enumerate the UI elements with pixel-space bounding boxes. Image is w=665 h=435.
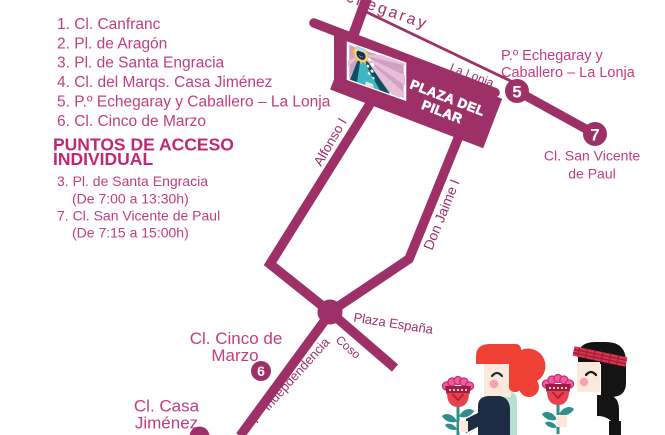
svg-text:Echegaray: Echegaray bbox=[332, 0, 431, 33]
svg-text:Jiménez: Jiménez bbox=[135, 414, 198, 433]
svg-text:6: 6 bbox=[257, 363, 265, 379]
svg-text:INDIVIDUAL: INDIVIDUAL bbox=[53, 149, 153, 169]
svg-text:(De 7:00 a 13:30h): (De 7:00 a 13:30h) bbox=[72, 191, 189, 207]
svg-text:2. Pl. de Aragón: 2. Pl. de Aragón bbox=[57, 35, 167, 52]
svg-text:7: 7 bbox=[590, 126, 599, 145]
svg-text:(De 7:15 a 15:00h): (De 7:15 a 15:00h) bbox=[72, 225, 189, 241]
svg-text:7. Cl. San Vicente de Paul: 7. Cl. San Vicente de Paul bbox=[57, 208, 220, 224]
svg-text:Caballero – La Lonja: Caballero – La Lonja bbox=[501, 65, 636, 81]
svg-text:5: 5 bbox=[512, 83, 521, 102]
svg-text:1. Cl. Canfranc: 1. Cl. Canfranc bbox=[57, 16, 161, 33]
svg-text:Plaza España: Plaza España bbox=[353, 310, 435, 337]
svg-text:4. Cl. del Marqs. Casa Jiménez: 4. Cl. del Marqs. Casa Jiménez bbox=[57, 74, 272, 91]
svg-text:P.º Echegaray y: P.º Echegaray y bbox=[501, 48, 604, 64]
svg-text:3. Pl. de Santa Engracia: 3. Pl. de Santa Engracia bbox=[57, 173, 208, 189]
svg-text:5. P.º Echegaray y Caballero –: 5. P.º Echegaray y Caballero – La Lonja bbox=[57, 94, 331, 111]
svg-text:Cl. San Vicente: Cl. San Vicente bbox=[544, 148, 640, 164]
svg-text:de Paul: de Paul bbox=[568, 166, 615, 182]
svg-text:3. Pl. de Santa Engracia: 3. Pl. de Santa Engracia bbox=[57, 55, 225, 72]
svg-text:Marzo: Marzo bbox=[211, 346, 258, 365]
svg-text:6. Cl. Cinco de Marzo: 6. Cl. Cinco de Marzo bbox=[57, 113, 206, 130]
